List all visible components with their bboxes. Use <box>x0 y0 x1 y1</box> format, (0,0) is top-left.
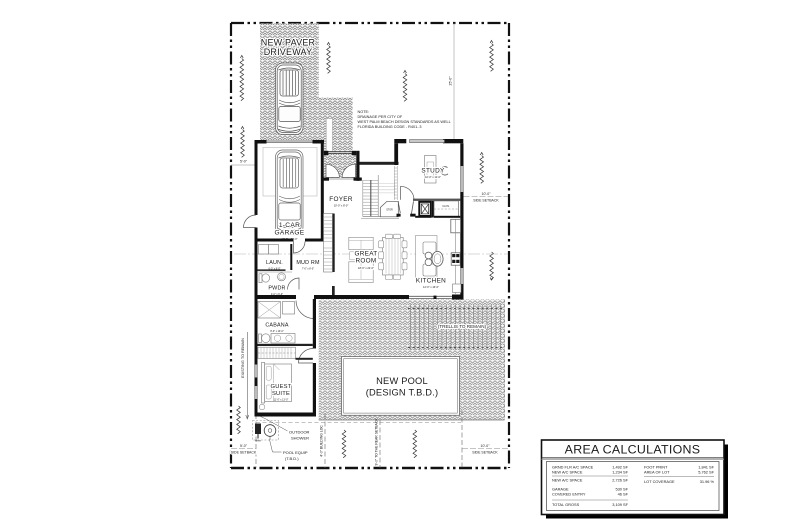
svg-text:10'-0": 10'-0" <box>482 192 492 196</box>
svg-text:NEW A/C SPACE: NEW A/C SPACE <box>552 470 583 475</box>
svg-text:DRIVEWAY: DRIVEWAY <box>264 47 313 57</box>
svg-text:FLORIDA BUILDING CODE - R401..: FLORIDA BUILDING CODE - R401..3 <box>358 125 422 129</box>
svg-text:DRAINAGE PER CITY OF: DRAINAGE PER CITY OF <box>358 115 403 119</box>
svg-text:GUEST: GUEST <box>271 384 292 390</box>
svg-text:10'-0" x 8'-0": 10'-0" x 8'-0" <box>334 204 349 208</box>
svg-text:NEW POOL: NEW POOL <box>376 376 428 386</box>
svg-text:1-CAR: 1-CAR <box>279 222 300 229</box>
svg-text:STUDY: STUDY <box>421 168 445 175</box>
svg-text:9'-0" TO THE REAR SETBACK: 9'-0" TO THE REAR SETBACK <box>375 418 379 466</box>
svg-text:WEST PALM BEACH DESIGN STANDAR: WEST PALM BEACH DESIGN STANDARDS AS WELL <box>358 120 451 124</box>
svg-text:MUD RM: MUD RM <box>296 260 320 266</box>
svg-text:NOTE:: NOTE: <box>358 110 370 114</box>
svg-text:4'-0" BUILDING LOC: 4'-0" BUILDING LOC <box>320 425 324 457</box>
svg-text:shwr: shwr <box>255 439 261 443</box>
svg-text:SUITE: SUITE <box>272 391 290 397</box>
svg-text:SIDE SETBACK: SIDE SETBACK <box>472 451 498 455</box>
svg-text:AREA OF LOT: AREA OF LOT <box>644 470 670 475</box>
svg-text:NEW A/C SPACE: NEW A/C SPACE <box>552 478 583 483</box>
svg-text:SIDE SETBACK: SIDE SETBACK <box>473 199 499 203</box>
svg-text:(DESIGN T.B.D.): (DESIGN T.B.D.) <box>366 388 439 398</box>
svg-text:OUTDOOR: OUTDOOR <box>289 430 310 435</box>
svg-text:(TRELLIS TO REMAIN): (TRELLIS TO REMAIN) <box>438 324 487 329</box>
svg-text:CABANA: CABANA <box>265 323 289 329</box>
svg-text:GARAGE: GARAGE <box>274 230 304 237</box>
svg-text:5,762 SF: 5,762 SF <box>698 470 714 475</box>
svg-text:TOTAL GROSS: TOTAL GROSS <box>552 502 580 507</box>
svg-text:FOYER: FOYER <box>329 196 353 203</box>
svg-text:LOT COVERAGE: LOT COVERAGE <box>644 479 675 484</box>
svg-text:12'-0" x 16'-0": 12'-0" x 16'-0" <box>423 285 439 289</box>
svg-text:POOL EQUIP: POOL EQUIP <box>283 450 308 455</box>
svg-text:EXISTING TO REMAIN: EXISTING TO REMAIN <box>241 338 245 378</box>
svg-text:COVERED ENTRY: COVERED ENTRY <box>552 492 586 497</box>
svg-text:STOR: STOR <box>386 209 393 212</box>
svg-text:CLOS.: CLOS. <box>442 205 450 208</box>
svg-text:7'-0" x 8'-0": 7'-0" x 8'-0" <box>302 267 314 270</box>
svg-text:LAUN.: LAUN. <box>266 260 283 266</box>
svg-text:5'-0": 5'-0" <box>240 160 248 164</box>
svg-text:PWDR: PWDR <box>268 286 285 292</box>
svg-text:11'-0" x 13'-0": 11'-0" x 13'-0" <box>274 399 289 402</box>
svg-text:NEW PAVER: NEW PAVER <box>261 38 316 48</box>
svg-text:8'-0" x 10'-0": 8'-0" x 10'-0" <box>270 330 284 333</box>
svg-text:46 SF: 46 SF <box>618 492 629 497</box>
svg-text:10'-0" x 11'-0": 10'-0" x 11'-0" <box>425 175 441 179</box>
svg-text:12'-0" x 24'-0": 12'-0" x 24'-0" <box>282 237 298 241</box>
svg-text:SIDE SETBACK: SIDE SETBACK <box>231 451 257 455</box>
svg-text:18'-0" x 22'-0": 18'-0" x 22'-0" <box>358 266 374 270</box>
svg-text:KITCHEN: KITCHEN <box>416 278 446 285</box>
svg-text:10'-0": 10'-0" <box>481 444 491 448</box>
svg-text:(T.B.D.): (T.B.D.) <box>285 456 299 461</box>
svg-text:25'-0": 25'-0" <box>449 76 453 86</box>
svg-text:2,726 SF: 2,726 SF <box>612 478 628 483</box>
svg-text:AREA CALCULATIONS: AREA CALCULATIONS <box>565 443 701 457</box>
svg-text:3,109 SF: 3,109 SF <box>612 502 628 507</box>
svg-text:1,234 SF: 1,234 SF <box>612 470 628 475</box>
svg-text:SHOWER: SHOWER <box>291 436 309 441</box>
svg-text:ROOM: ROOM <box>355 258 376 265</box>
svg-text:5'-0": 5'-0" <box>240 444 248 448</box>
svg-text:GREAT: GREAT <box>354 251 377 258</box>
svg-text:31.96 %: 31.96 % <box>700 479 715 484</box>
